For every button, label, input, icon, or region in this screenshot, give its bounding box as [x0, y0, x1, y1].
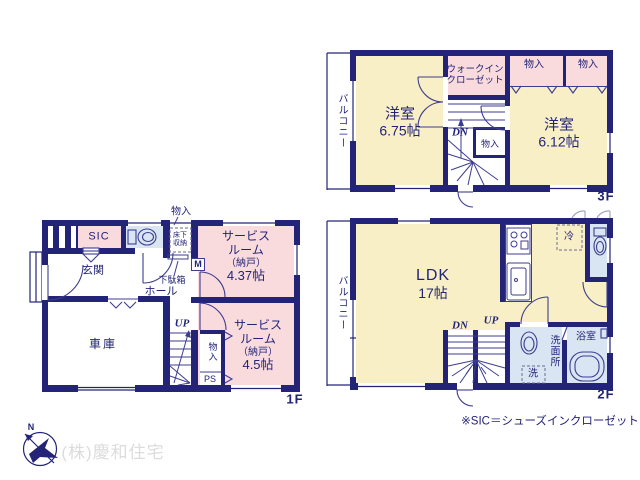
entrance-porch — [30, 252, 42, 302]
closet-label: 物入 — [524, 59, 544, 71]
garage-label: 車庫 — [89, 338, 117, 352]
closet-top-label: 物入 — [171, 206, 191, 218]
stair-down-label-2f: DN — [452, 320, 468, 333]
floor-plan-1f: 物入 SIC 床下 収納 M 玄関 下駄箱 ホール 車庫 UP 物入 PS サー… — [28, 200, 313, 412]
floor-storage-label: 床下 収納 — [173, 232, 187, 248]
fridge-label: 冷 — [564, 231, 574, 243]
walk-in-closet-label: ウォークイン クローゼット — [446, 65, 503, 87]
floor-plan-2f: バルコニー LDK 17帖 冷 浴室 洗面所 洗 DN UP 2F — [318, 210, 623, 410]
floor-label-3f: 3F — [597, 190, 614, 205]
floor-plan-3f: バルコニー 洋室 6.75帖 洋室 6.12帖 ウォークイン クローゼット 物入… — [318, 44, 623, 214]
closet-label: 物入 — [481, 139, 499, 149]
service-room2-label: サービス ルーム （納戸） 4.5帖 — [234, 319, 282, 373]
company-watermark: (株)慶和住宅 — [61, 443, 164, 463]
ldk-label: LDK 17帖 — [416, 267, 450, 301]
floor-plan-page: バルコニー 洋室 6.75帖 洋室 6.12帖 ウォークイン クローゼット 物入… — [0, 0, 640, 480]
hall-label: ホール — [145, 286, 178, 299]
sic-label: SIC — [88, 231, 109, 244]
stair-up-label-2f: UP — [484, 315, 499, 328]
washer-label: 洗 — [528, 368, 538, 380]
east-bedroom-label: 洋室 6.12帖 — [538, 116, 579, 149]
bathroom-label: 浴室 — [576, 331, 596, 343]
sic-footnote: ※SIC＝シューズインクローゼット — [461, 415, 639, 428]
stair-up-label-1f: UP — [175, 318, 190, 331]
pipe-space-label: PS — [204, 374, 216, 384]
west-bedroom-label: 洋室 6.75帖 — [379, 105, 420, 138]
compass-north-label: N — [28, 422, 35, 432]
balcony-label-2f: バルコニー — [336, 276, 346, 331]
stairs-1f — [170, 330, 191, 385]
floor-label-1f: 1F — [286, 393, 303, 408]
floor-plan-2f-drawing — [318, 210, 623, 410]
closet-label: 物入 — [578, 59, 598, 71]
washroom-label: 洗面所 — [548, 335, 558, 368]
floor-label-2f: 2F — [597, 388, 614, 403]
floor-plan-1f-drawing — [28, 200, 313, 412]
kitchen-counter-icon — [505, 224, 532, 302]
shoe-cabinet-icon — [168, 255, 188, 259]
meter-label: M — [194, 259, 202, 269]
entrance-label: 玄関 — [82, 265, 104, 278]
stair-down-label-3f: DN — [452, 127, 468, 140]
rooms-2f — [356, 224, 608, 383]
closet-label-1f: 物入 — [208, 342, 217, 362]
service-room1-label: サービス ルーム （納戸） 4.37帖 — [222, 230, 270, 284]
compass-icon — [12, 421, 68, 477]
casement-window-icons — [572, 211, 610, 218]
shoe-cabinet-label: 下駄箱 — [158, 275, 185, 285]
balcony-label-3f: バルコニー — [336, 94, 346, 149]
